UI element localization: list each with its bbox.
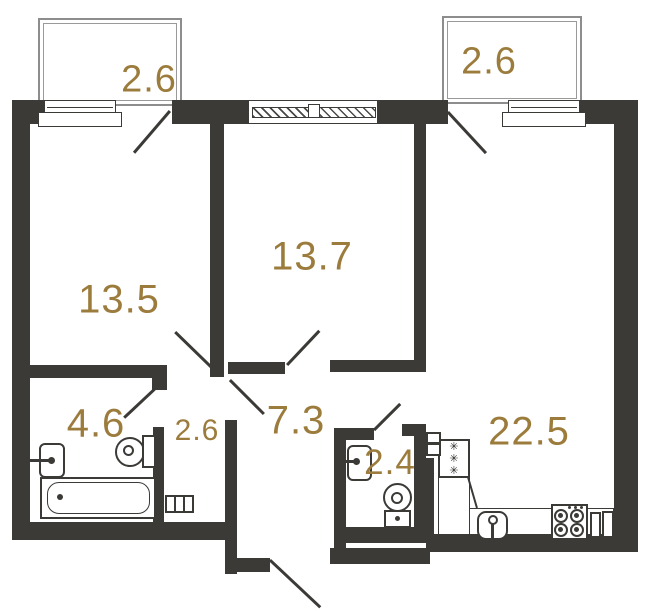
- fridge-star: ✳: [449, 465, 458, 477]
- bathroom-toilet-tank-icon: [142, 435, 156, 468]
- wall-left-outer: [12, 100, 30, 540]
- kitchen-cabinet: [590, 512, 601, 538]
- door-bathroom: [123, 386, 158, 419]
- area-label-balcony-left: 2.6: [121, 59, 177, 102]
- stove-burner-dot: [574, 527, 579, 532]
- stove-knob-dot: [568, 506, 571, 509]
- wall-bathroom-top: [30, 365, 167, 378]
- door-wc: [373, 403, 401, 431]
- wall-top-a: [172, 100, 248, 124]
- wall-top-b: [378, 100, 448, 124]
- radiator-icon: [167, 495, 194, 513]
- door-room2: [286, 330, 320, 366]
- stove-knob-dot: [580, 506, 583, 509]
- door-balcony-right: [447, 111, 487, 154]
- area-label-balcony-right: 2.6: [461, 41, 517, 84]
- wall-kitchen-left-lower: [426, 458, 434, 534]
- floor-plan: ✳ ✳ ✳ 2.6 2.6 13.5 13.7 4.6 2.6 7.3 2.4 …: [0, 0, 652, 611]
- area-label-closet: 2.6: [175, 414, 220, 448]
- windowsill-right: [502, 112, 586, 127]
- stove-knob-dot: [574, 506, 577, 509]
- area-label-bathroom: 4.6: [67, 402, 126, 447]
- wall-wc-bottom: [334, 527, 426, 543]
- windowsill-left: [38, 112, 122, 127]
- area-label-room2: 13.7: [271, 235, 353, 280]
- area-label-hallway: 7.3: [267, 399, 326, 444]
- wall-right-outer: [614, 100, 638, 552]
- bathroom-faucet-dot: [48, 457, 55, 464]
- stove-burner-dot: [558, 527, 563, 532]
- wall-wc-right-stub: [402, 424, 426, 436]
- door-balcony-left: [133, 110, 171, 154]
- area-label-wc: 2.4: [364, 443, 416, 483]
- wall-wc-top: [334, 428, 374, 440]
- kitchen-cabinet: [602, 511, 614, 538]
- kitchen-counter-column: [438, 477, 470, 535]
- wc-toilet-tank-dot: [395, 516, 400, 521]
- window-glazing: [47, 107, 113, 109]
- wc-toilet-inner: [391, 492, 403, 504]
- window-glazing: [511, 107, 577, 109]
- area-label-room1: 13.5: [78, 278, 160, 323]
- fridge-star: ✳: [449, 441, 458, 453]
- radiator-cell: [183, 495, 194, 513]
- bathroom-toilet-inner: [123, 445, 134, 456]
- fridge-stars-icon: ✳ ✳ ✳: [438, 440, 470, 477]
- fridge-star: ✳: [449, 453, 458, 465]
- wall-room2-right-upper: [414, 124, 426, 362]
- door-entrance: [269, 559, 321, 608]
- wall-room2-bottom-left: [228, 362, 285, 374]
- wall-bottom-left: [12, 522, 237, 540]
- door-closet: [229, 379, 265, 415]
- stove-burner-dot: [574, 513, 579, 518]
- wall-divider-rooms: [210, 124, 224, 377]
- wall-room2-bottom-right: [330, 360, 426, 372]
- stove-burner-dot: [558, 513, 563, 518]
- wc-faucet-dot: [353, 458, 360, 465]
- bathtub-drain-dot: [57, 494, 63, 500]
- wall-entrance-recess: [225, 540, 237, 574]
- kitchen-faucet-stem: [491, 524, 494, 542]
- wall-closet-right: [225, 420, 237, 522]
- door-room1: [174, 331, 212, 368]
- area-label-kitchen: 22.5: [488, 410, 570, 455]
- wall-entrance-stub: [237, 558, 270, 572]
- window-room2-handle-icon: [308, 104, 320, 118]
